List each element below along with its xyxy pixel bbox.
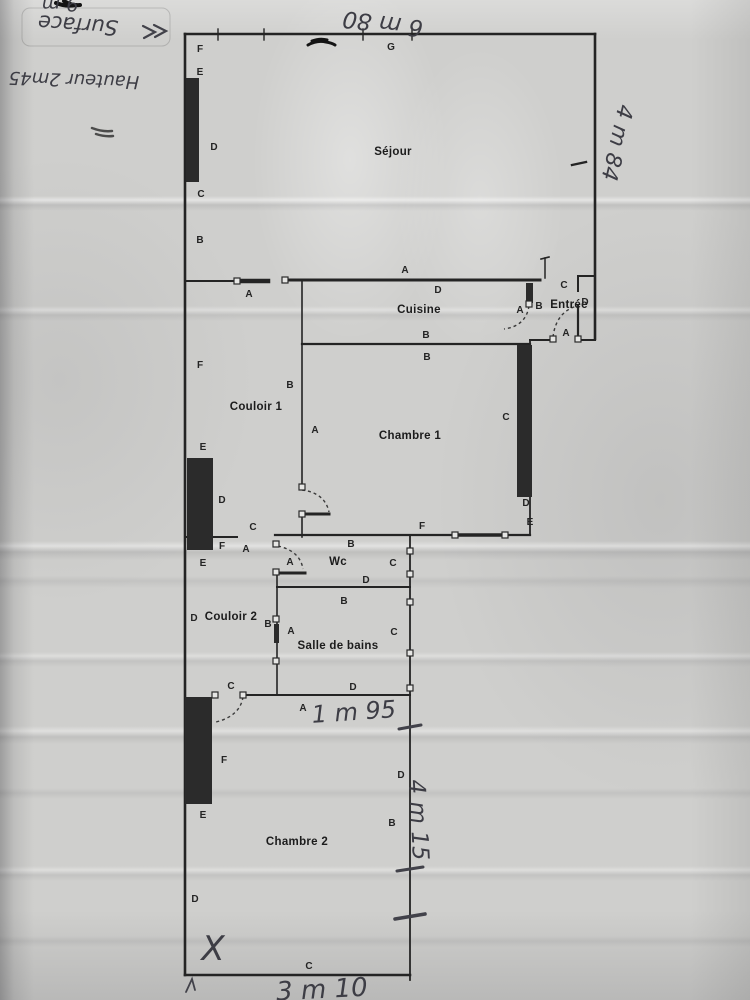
wall-letter: C <box>249 522 256 533</box>
hinge-square <box>234 278 240 284</box>
hinge-square <box>282 277 288 283</box>
wall-letter: A <box>562 328 569 339</box>
wall-letter: A <box>245 289 252 300</box>
hinge-square <box>407 685 413 691</box>
wall-letter: B <box>422 330 429 341</box>
wall-letter: C <box>560 280 567 291</box>
wall-letter: D <box>349 682 356 693</box>
wall-letter: B <box>264 619 271 630</box>
handwritten-arrow-icon <box>143 25 166 38</box>
wall-letter: B <box>196 235 203 246</box>
wall-letter: F <box>219 541 225 552</box>
hinge-square <box>452 532 458 538</box>
wall-letter: A <box>516 305 523 316</box>
wall-letter: D <box>397 770 404 781</box>
wall-letter: G <box>387 42 395 53</box>
room-label: Cuisine <box>397 304 441 316</box>
hinge-square <box>407 571 413 577</box>
wall-letter: D <box>210 142 217 153</box>
wall-letter: A <box>401 265 408 276</box>
wall-letter: A <box>311 425 318 436</box>
hinge-square <box>273 541 279 547</box>
corner-caret-mark <box>186 979 195 992</box>
window-bar-sejour <box>186 78 199 182</box>
wall-letter: D <box>434 285 441 296</box>
wall-letter: F <box>419 521 425 532</box>
scanned-floor-plan-photo: 9 m Surface Hauteur 2m45 6 m 80 4 m 84 1… <box>0 0 750 1000</box>
room-label: Séjour <box>374 146 412 158</box>
wall-letter: E <box>200 442 207 453</box>
room-label: Salle de bains <box>298 640 379 652</box>
hinge-square <box>240 692 246 698</box>
outer-walls <box>185 34 595 980</box>
wall-letter: A <box>299 703 306 714</box>
wall-letter: E <box>527 517 534 528</box>
hinge-square <box>407 599 413 605</box>
window-bar-couloir1 <box>187 458 213 550</box>
wall-letter: E <box>200 810 207 821</box>
wall-letter: C <box>390 627 397 638</box>
wall-letter: B <box>423 352 430 363</box>
dim-top-6m80: 6 m 80 <box>341 5 425 41</box>
hauteur-note: Hauteur 2m45 <box>8 67 139 93</box>
wall-letter: B <box>535 301 542 312</box>
room-label: Couloir 2 <box>205 611 258 623</box>
floor-plan-svg: 9 m Surface Hauteur 2m45 6 m 80 4 m 84 1… <box>0 0 750 1000</box>
hinge-square <box>299 511 305 517</box>
wall-letter: A <box>287 626 294 637</box>
hinge-square <box>299 484 305 490</box>
wall-letter: D <box>362 575 369 586</box>
room-label: Couloir 1 <box>230 401 283 413</box>
door-arc-chambre1 <box>302 490 329 512</box>
wall-letter: A <box>286 557 293 568</box>
dim-right-4m84: 4 m 84 <box>596 102 638 183</box>
window-bar-chambre2 <box>185 697 212 804</box>
window-bar-chambre1 <box>517 345 532 497</box>
wall-letter: B <box>388 818 395 829</box>
wall-letter: B <box>340 596 347 607</box>
wall-letter: F <box>197 44 203 55</box>
dim-middle-1m95: 1 m 95 <box>311 695 397 729</box>
hinge-square <box>273 616 279 622</box>
wall-letter: D <box>522 498 529 509</box>
wall-ticks <box>218 29 586 259</box>
wall-letter: F <box>221 755 227 766</box>
hinge-square <box>575 336 581 342</box>
dim-bottom-3m10: 3 m 10 <box>275 973 368 1000</box>
wall-letter: F <box>197 360 203 371</box>
room-label: Chambre 1 <box>379 430 441 442</box>
hinge-square <box>407 650 413 656</box>
right-dim-tick <box>572 162 586 165</box>
hinge-square <box>526 301 532 307</box>
door-arc-chambre2 <box>216 697 243 722</box>
hinge-square <box>550 336 556 342</box>
hinge-square <box>407 548 413 554</box>
room-label: Chambre 2 <box>266 836 328 848</box>
hinge-square <box>273 569 279 575</box>
wall-letters-layer: GFEDCBAADCDBAABBFBAEDCFAECDEFBACDBDBACDC… <box>190 42 588 972</box>
hinge-square <box>212 692 218 698</box>
wall-letter: B <box>347 539 354 550</box>
wall-letter: C <box>197 189 204 200</box>
hinge-square <box>273 658 279 664</box>
surface-note: Surface <box>37 10 118 40</box>
x-mark: X <box>199 929 225 969</box>
wall-letter: D <box>581 297 588 308</box>
wall-letter: E <box>200 558 207 569</box>
wall-letter: C <box>227 681 234 692</box>
wall-letter: B <box>286 380 293 391</box>
wall-letter: C <box>389 558 396 569</box>
wall-letter: D <box>191 894 198 905</box>
wall-letter: A <box>242 544 249 555</box>
hinge-square <box>502 532 508 538</box>
wall-letter: D <box>190 613 197 624</box>
wall-letter: C <box>502 412 509 423</box>
wall-letter: D <box>218 495 225 506</box>
handwritten-annotations: 9 m Surface Hauteur 2m45 6 m 80 4 m 84 1… <box>8 0 637 1000</box>
wall-letter: C <box>305 961 312 972</box>
dim-lower-right-4m15: 4 m 15 <box>403 779 433 861</box>
room-label: Wc <box>329 556 347 568</box>
wall-letter: E <box>197 67 204 78</box>
